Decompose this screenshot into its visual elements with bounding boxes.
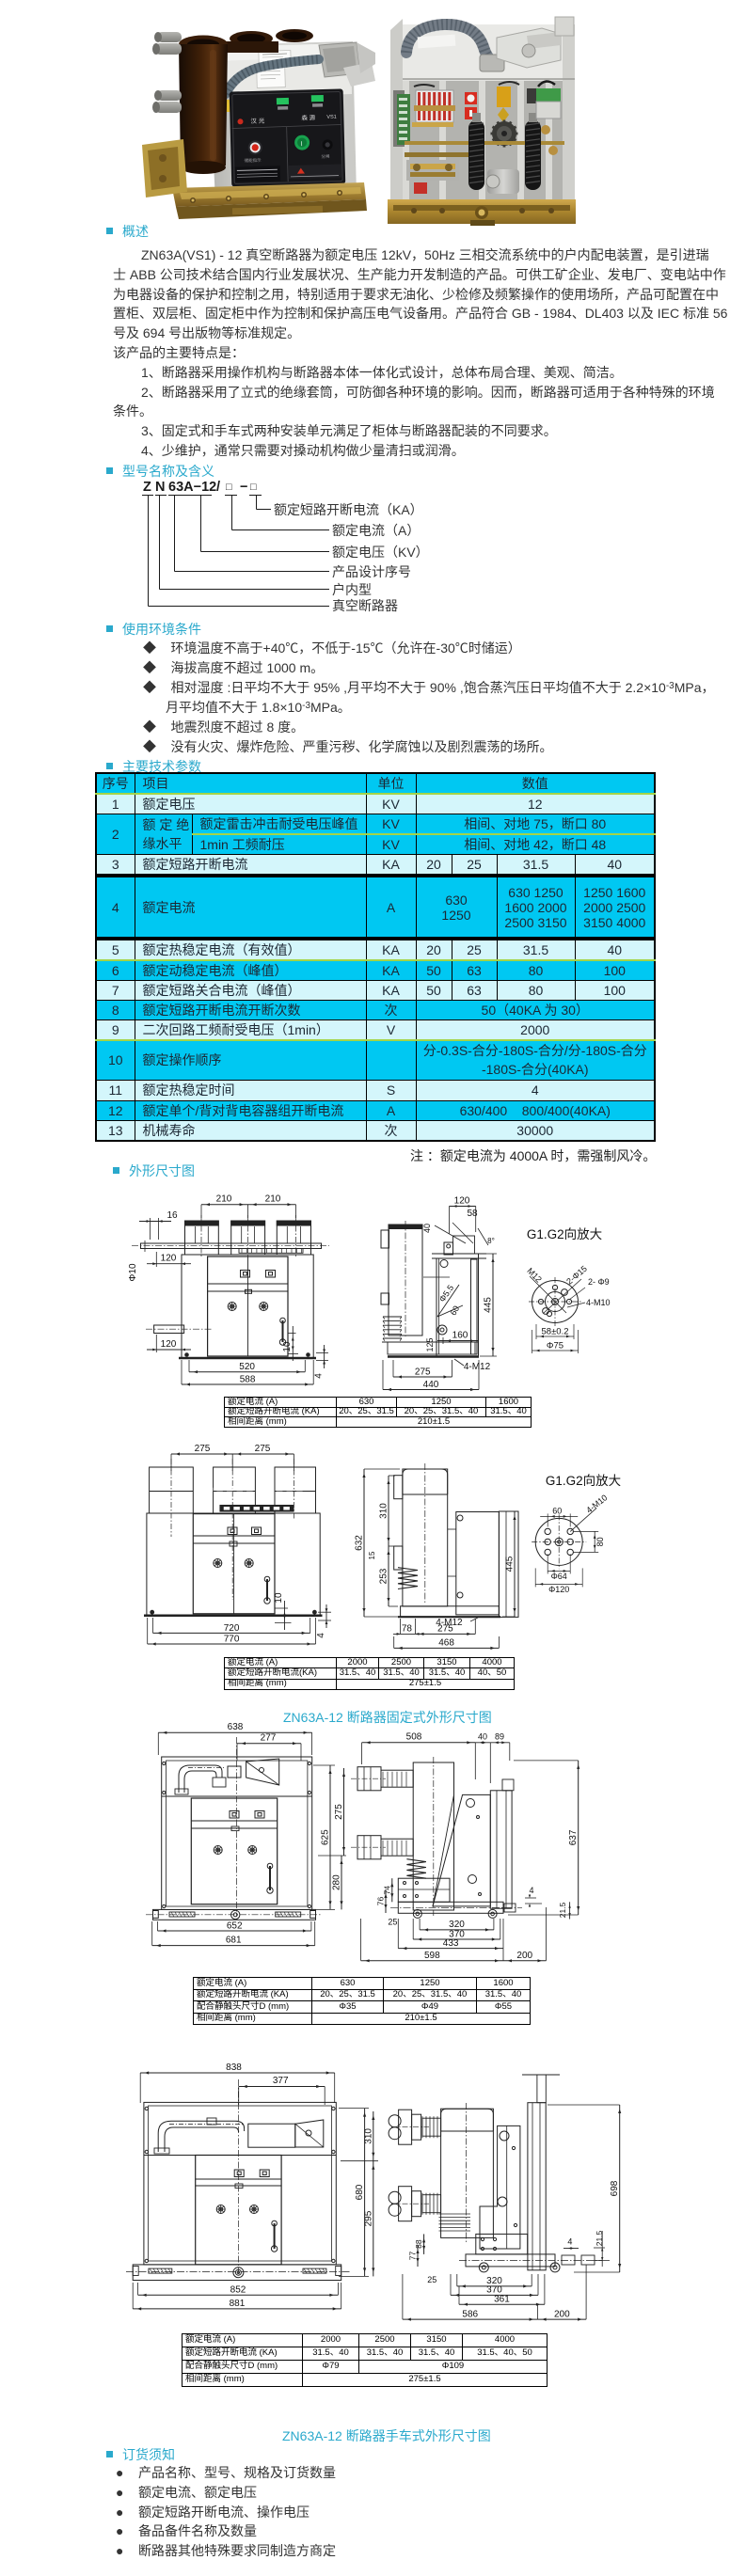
- svg-text:310: 310: [363, 2128, 373, 2144]
- svg-text:881: 881: [230, 2299, 246, 2309]
- svg-text:638: 638: [228, 1722, 244, 1732]
- svg-text:588: 588: [240, 1375, 256, 1385]
- svg-text:25: 25: [427, 2275, 436, 2284]
- svg-text:74: 74: [382, 1886, 391, 1895]
- svg-text:10: 10: [282, 1341, 293, 1352]
- svg-text:770: 770: [224, 1635, 240, 1645]
- svg-text:15: 15: [368, 1551, 376, 1559]
- svg-text:625: 625: [321, 1829, 331, 1845]
- svg-text:21.5: 21.5: [595, 2230, 604, 2246]
- svg-text:VS1: VS1: [326, 115, 337, 120]
- svg-text:160: 160: [452, 1331, 468, 1341]
- svg-text:275: 275: [415, 1367, 431, 1378]
- svg-text:586: 586: [462, 2309, 478, 2319]
- svg-text:720: 720: [224, 1623, 240, 1634]
- svg-text:真空断路器: 真空断路器: [332, 598, 398, 613]
- svg-text:G1.G2向放大: G1.G2向放大: [546, 1474, 621, 1488]
- svg-text:89: 89: [495, 1732, 504, 1742]
- svg-text:210: 210: [265, 1194, 281, 1205]
- svg-text:852: 852: [230, 2285, 246, 2296]
- svg-text:280: 280: [332, 1874, 342, 1890]
- svg-text:120: 120: [454, 1196, 470, 1207]
- svg-text:16: 16: [167, 1210, 178, 1221]
- svg-text:88: 88: [414, 2239, 423, 2249]
- svg-text:G1.G2向放大: G1.G2向放大: [527, 1227, 602, 1241]
- svg-text:295: 295: [363, 2210, 373, 2226]
- svg-text:680: 680: [355, 2184, 365, 2200]
- svg-text:4-M12: 4-M12: [464, 1362, 491, 1372]
- svg-text:838: 838: [226, 2062, 242, 2073]
- svg-text:4-M10: 4-M10: [584, 1493, 609, 1515]
- svg-text:汉 光: 汉 光: [250, 117, 265, 125]
- svg-text:森 源: 森 源: [301, 113, 316, 121]
- svg-text:361: 361: [494, 2294, 510, 2304]
- svg-text:698: 698: [610, 2180, 620, 2196]
- svg-text:78: 78: [402, 1623, 413, 1634]
- svg-text:2- Φ9: 2- Φ9: [588, 1277, 610, 1287]
- svg-text:N: N: [155, 480, 165, 495]
- svg-text:508: 508: [406, 1732, 422, 1743]
- svg-text:277: 277: [261, 1732, 277, 1743]
- svg-text:63A−12: 63A−12: [168, 480, 216, 495]
- svg-text:□: □: [226, 482, 232, 493]
- svg-text:40: 40: [478, 1732, 487, 1742]
- svg-text:产品设计序号: 产品设计序号: [332, 564, 411, 579]
- svg-text:637: 637: [568, 1829, 579, 1845]
- svg-text:210: 210: [216, 1194, 232, 1205]
- svg-text:125: 125: [425, 1337, 435, 1351]
- svg-text:40: 40: [422, 1224, 432, 1233]
- svg-text:58±0.2: 58±0.2: [542, 1327, 569, 1337]
- svg-text:275: 275: [195, 1444, 211, 1454]
- svg-text:Φ10: Φ10: [128, 1263, 138, 1282]
- svg-text:4: 4: [316, 1633, 326, 1638]
- svg-text:275: 275: [334, 1804, 344, 1820]
- svg-text:520: 520: [239, 1362, 255, 1372]
- svg-text:4-M12: 4-M12: [436, 1618, 463, 1628]
- svg-text:Z: Z: [143, 480, 151, 495]
- svg-text:Φ64: Φ64: [551, 1572, 567, 1581]
- svg-text:120: 120: [161, 1254, 177, 1264]
- svg-text:253: 253: [379, 1568, 389, 1584]
- svg-text:76: 76: [376, 1897, 386, 1906]
- svg-text:/: /: [216, 480, 220, 495]
- svg-text:58: 58: [467, 1209, 478, 1219]
- svg-text:632: 632: [355, 1535, 365, 1551]
- svg-text:□: □: [250, 482, 257, 493]
- svg-text:额定短路开断电流（KA）: 额定短路开断电流（KA）: [274, 502, 423, 517]
- svg-text:377: 377: [273, 2076, 289, 2086]
- svg-text:468: 468: [438, 1637, 454, 1648]
- svg-text:445: 445: [505, 1556, 516, 1572]
- svg-text:440: 440: [423, 1380, 439, 1390]
- svg-text:200: 200: [554, 2309, 570, 2319]
- svg-text:21.5: 21.5: [558, 1902, 567, 1918]
- svg-text:77: 77: [408, 2252, 418, 2261]
- svg-text:4: 4: [314, 1373, 325, 1379]
- svg-text:445: 445: [484, 1297, 494, 1313]
- svg-text:I: I: [301, 141, 303, 148]
- svg-text:275: 275: [255, 1444, 271, 1454]
- svg-text:M12: M12: [525, 1266, 543, 1284]
- svg-text:433: 433: [443, 1938, 459, 1949]
- svg-text:Φ120: Φ120: [548, 1585, 569, 1594]
- svg-text:4: 4: [529, 1886, 533, 1895]
- svg-text:户内型: 户内型: [332, 582, 372, 597]
- svg-text:310: 310: [379, 1503, 389, 1519]
- svg-text:681: 681: [226, 1936, 242, 1946]
- svg-text:额定电压（KV）: 额定电压（KV）: [332, 545, 429, 560]
- svg-text:598: 598: [424, 1951, 440, 1961]
- svg-text:4-M10: 4-M10: [586, 1298, 611, 1307]
- svg-text:60: 60: [552, 1506, 562, 1515]
- svg-text:80: 80: [595, 1537, 605, 1546]
- svg-text:120: 120: [161, 1339, 177, 1350]
- svg-text:额定电流（A）: 额定电流（A）: [332, 523, 420, 538]
- svg-text:4: 4: [567, 2237, 572, 2247]
- svg-text:652: 652: [227, 1920, 243, 1931]
- svg-text:−: −: [240, 480, 247, 495]
- svg-text:8°: 8°: [487, 1237, 495, 1245]
- svg-text:10: 10: [274, 1592, 284, 1604]
- svg-text:25: 25: [388, 1917, 397, 1926]
- svg-text:Φ75: Φ75: [547, 1341, 563, 1351]
- svg-text:200: 200: [516, 1951, 532, 1961]
